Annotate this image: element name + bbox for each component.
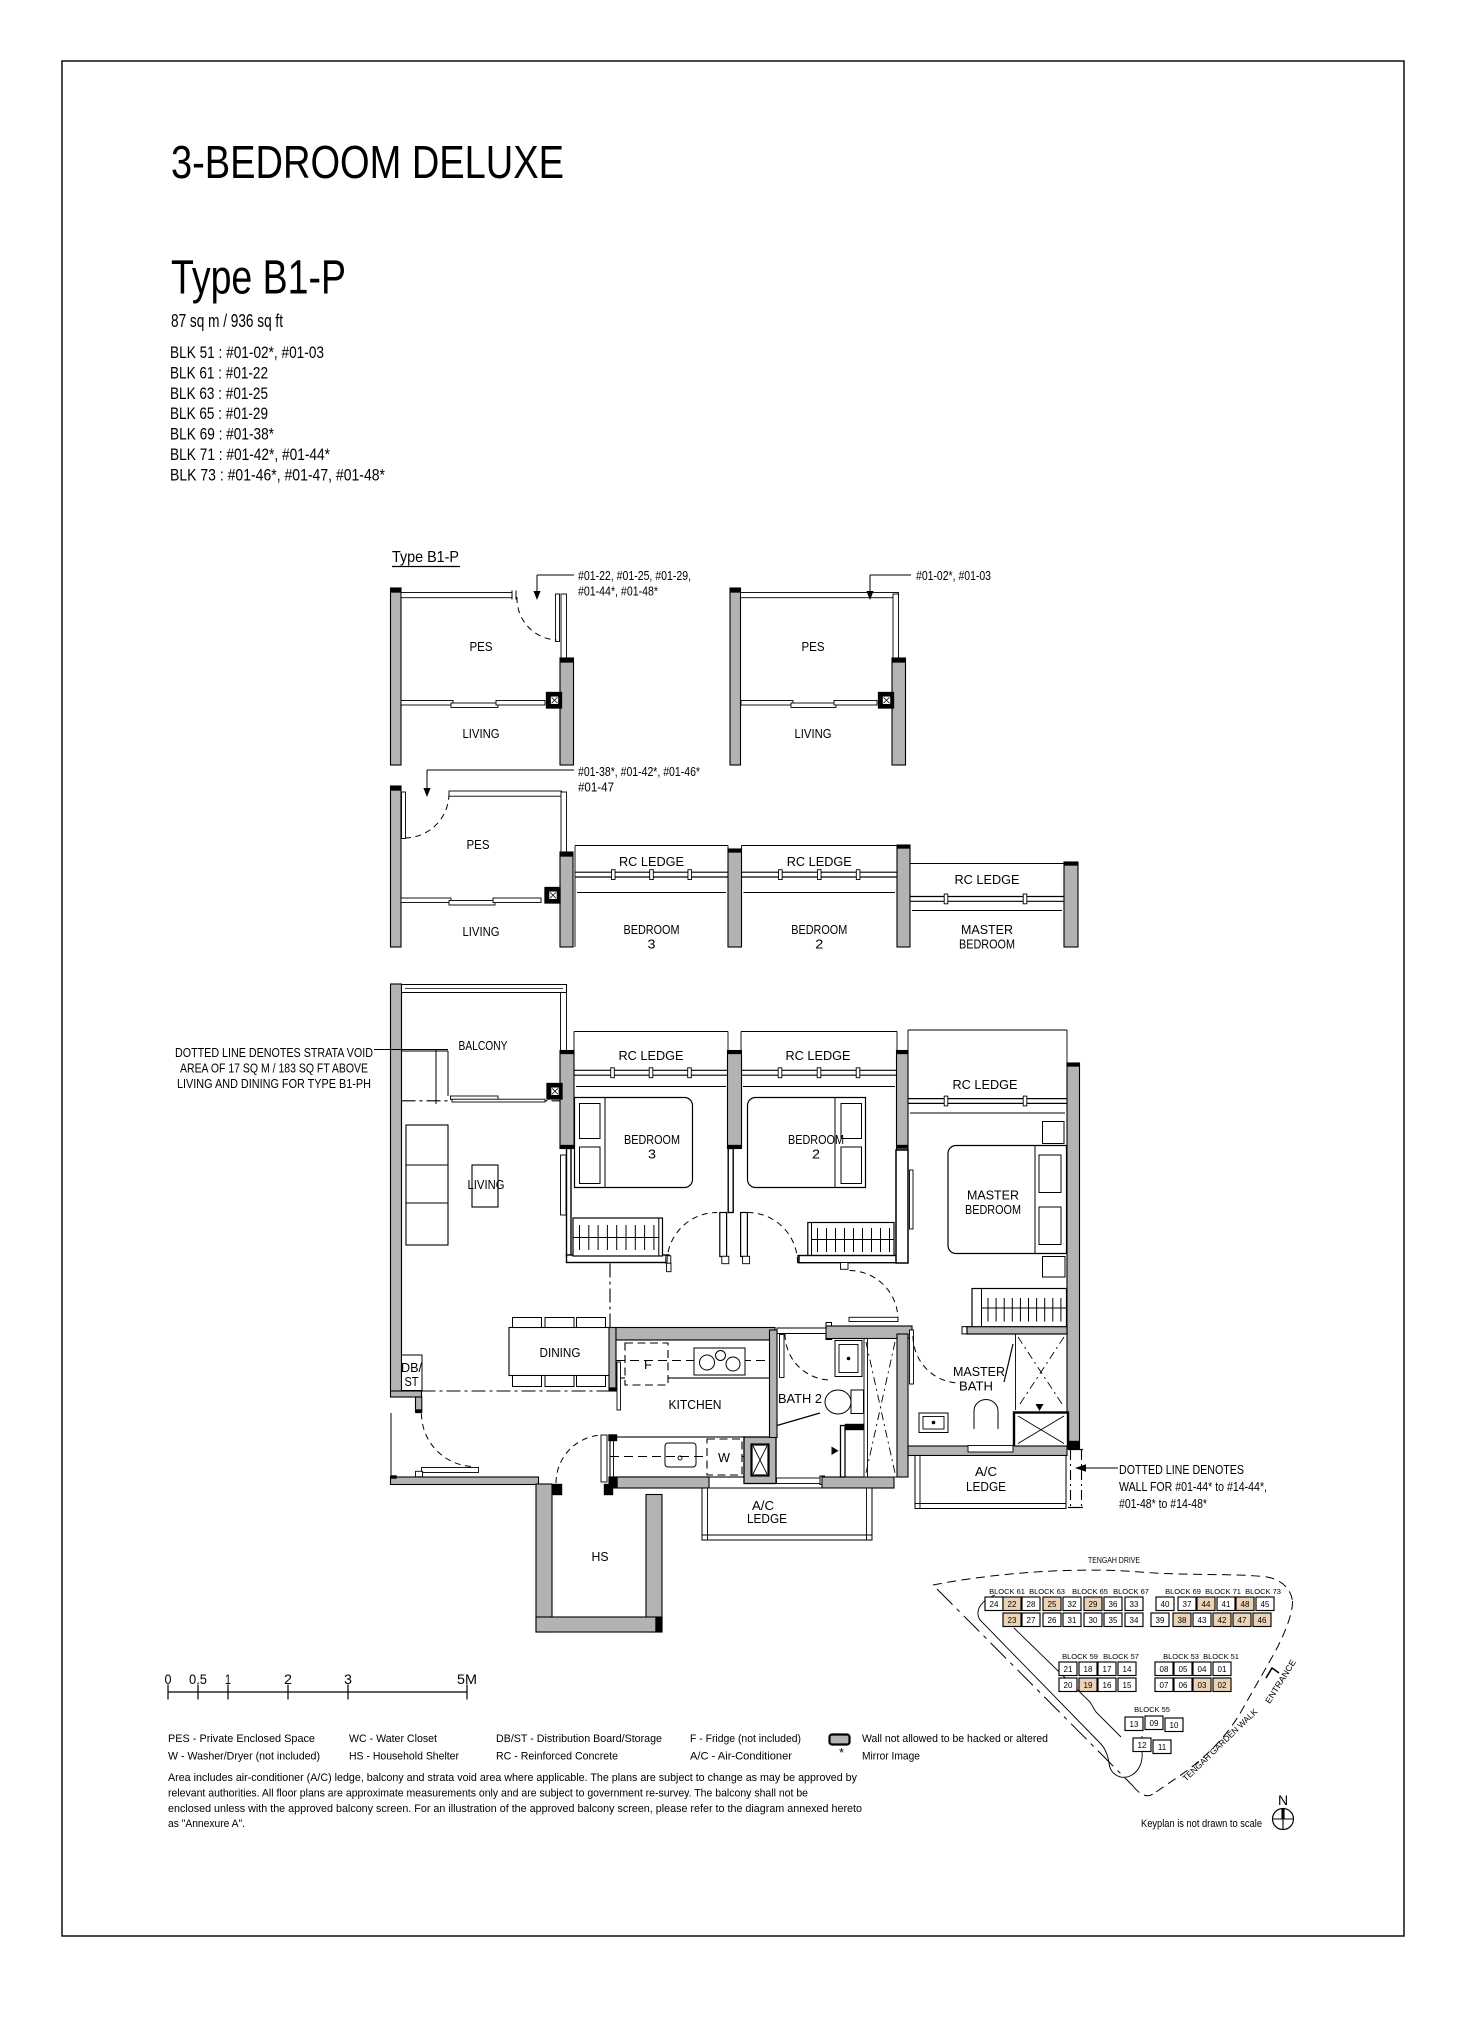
svg-text:BLOCK 73: BLOCK 73 — [1245, 1587, 1281, 1596]
svg-text:BLOCK 65: BLOCK 65 — [1072, 1587, 1108, 1596]
svg-text:MASTER: MASTER — [953, 1364, 1005, 1379]
svg-text:04: 04 — [1198, 1665, 1207, 1674]
svg-text:29: 29 — [1089, 1600, 1098, 1609]
svg-text:A/C: A/C — [975, 1464, 997, 1479]
svg-text:BEDROOM: BEDROOM — [959, 937, 1015, 952]
svg-text:LIVING: LIVING — [795, 726, 832, 741]
svg-text:A/C - Air-Conditioner: A/C - Air-Conditioner — [690, 1751, 792, 1763]
svg-text:#01-38*, #01-42*, #01-46*: #01-38*, #01-42*, #01-46* — [578, 765, 700, 779]
svg-text:10: 10 — [1170, 1721, 1179, 1730]
svg-text:BLK 69 : #01-38*: BLK 69 : #01-38* — [170, 425, 274, 444]
svg-text:BLOCK 63: BLOCK 63 — [1029, 1587, 1065, 1596]
svg-text:BLOCK 59: BLOCK 59 — [1062, 1652, 1098, 1661]
svg-text:PES: PES — [802, 639, 825, 654]
svg-text:3-BEDROOM DELUXE: 3-BEDROOM DELUXE — [171, 136, 564, 188]
svg-text:#01-02*, #01-03: #01-02*, #01-03 — [916, 569, 991, 583]
svg-text:AREA OF 17 SQ M / 183 SQ FT AB: AREA OF 17 SQ M / 183 SQ FT ABOVE — [180, 1062, 368, 1076]
svg-text:23: 23 — [1008, 1616, 1017, 1625]
svg-text:N: N — [1278, 1792, 1288, 1808]
svg-text:37: 37 — [1183, 1600, 1192, 1609]
svg-text:BLK 73 : #01-46*, #01-47, #01-: BLK 73 : #01-46*, #01-47, #01-48* — [170, 465, 385, 484]
svg-text:0: 0 — [165, 1672, 172, 1687]
svg-text:Mirror Image: Mirror Image — [862, 1751, 920, 1763]
svg-text:LEDGE: LEDGE — [747, 1511, 787, 1526]
svg-text:RC - Reinforced Concrete: RC - Reinforced Concrete — [496, 1751, 618, 1763]
svg-text:PES: PES — [467, 837, 490, 852]
svg-text:#01-44*, #01-48*: #01-44*, #01-48* — [578, 585, 658, 599]
svg-text:W - Washer/Dryer (not included: W - Washer/Dryer (not included) — [168, 1751, 320, 1763]
svg-text:LIVING: LIVING — [463, 726, 500, 741]
svg-text:21: 21 — [1064, 1665, 1073, 1674]
svg-text:BLOCK 51: BLOCK 51 — [1203, 1652, 1239, 1661]
svg-text:HS: HS — [592, 1549, 609, 1564]
svg-text:Area includes air-conditioner: Area includes air-conditioner (A/C) ledg… — [168, 1772, 858, 1784]
svg-text:28: 28 — [1027, 1600, 1036, 1609]
svg-text:3: 3 — [344, 1672, 352, 1687]
svg-text:DB/: DB/ — [401, 1360, 422, 1375]
svg-text:14: 14 — [1123, 1665, 1132, 1674]
svg-text:BLOCK 71: BLOCK 71 — [1205, 1587, 1241, 1596]
svg-text:22: 22 — [1008, 1600, 1017, 1609]
svg-text:42: 42 — [1218, 1616, 1227, 1625]
svg-text:46: 46 — [1258, 1616, 1267, 1625]
svg-text:Keyplan is not drawn to scale: Keyplan is not drawn to scale — [1141, 1818, 1262, 1830]
svg-text:MASTER: MASTER — [967, 1188, 1019, 1203]
svg-text:32: 32 — [1068, 1600, 1077, 1609]
svg-text:02: 02 — [1218, 1681, 1227, 1690]
svg-text:25: 25 — [1048, 1600, 1057, 1609]
svg-text:BATH: BATH — [959, 1379, 993, 1394]
svg-text:35: 35 — [1109, 1616, 1118, 1625]
svg-text:11: 11 — [1158, 1743, 1167, 1752]
svg-text:as "Annexure A".: as "Annexure A". — [168, 1818, 245, 1830]
svg-text:03: 03 — [1198, 1681, 1207, 1690]
svg-text:19: 19 — [1084, 1681, 1093, 1690]
svg-text:87 sq m / 936 sq ft: 87 sq m / 936 sq ft — [171, 311, 283, 331]
svg-text:BLK 63 : #01-25: BLK 63 : #01-25 — [170, 384, 268, 403]
svg-text:18: 18 — [1084, 1665, 1093, 1674]
svg-text:34: 34 — [1130, 1616, 1139, 1625]
svg-text:48: 48 — [1241, 1600, 1250, 1609]
svg-text:BEDROOM: BEDROOM — [624, 922, 680, 937]
svg-text:BEDROOM: BEDROOM — [788, 1132, 844, 1147]
svg-text:38: 38 — [1178, 1616, 1187, 1625]
svg-text:Type B1-P: Type B1-P — [171, 252, 346, 305]
svg-text:1: 1 — [225, 1672, 231, 1687]
svg-text:13: 13 — [1130, 1720, 1139, 1729]
svg-text:2: 2 — [812, 1147, 820, 1162]
svg-text:17: 17 — [1103, 1665, 1112, 1674]
svg-text:05: 05 — [1179, 1665, 1188, 1674]
svg-text:W: W — [718, 1450, 731, 1465]
svg-text:RC LEDGE: RC LEDGE — [787, 854, 852, 869]
svg-text:BLOCK 53: BLOCK 53 — [1163, 1652, 1199, 1661]
svg-text:ST: ST — [405, 1374, 419, 1389]
svg-text:LEDGE: LEDGE — [966, 1479, 1006, 1494]
svg-text:#01-22, #01-25, #01-29,: #01-22, #01-25, #01-29, — [578, 569, 691, 583]
svg-text:HS - Household Shelter: HS - Household Shelter — [349, 1751, 459, 1763]
svg-text:PES - Private Enclosed Space: PES - Private Enclosed Space — [168, 1733, 315, 1745]
svg-text:BLK 61 : #01-22: BLK 61 : #01-22 — [170, 363, 268, 382]
svg-text:Type B1-P: Type B1-P — [392, 549, 459, 566]
svg-text:BEDROOM: BEDROOM — [624, 1132, 680, 1147]
svg-text:24: 24 — [990, 1600, 999, 1609]
svg-text:#01-48* to #14-48*: #01-48* to #14-48* — [1119, 1497, 1207, 1511]
svg-text:3: 3 — [648, 1147, 656, 1162]
svg-text:DOTTED LINE DENOTES STRATA VOI: DOTTED LINE DENOTES STRATA VOID — [175, 1046, 373, 1060]
svg-text:BLOCK 67: BLOCK 67 — [1113, 1587, 1149, 1596]
svg-text:15: 15 — [1123, 1681, 1132, 1690]
svg-text:09: 09 — [1150, 1719, 1159, 1728]
svg-text:39: 39 — [1156, 1616, 1165, 1625]
svg-text:27: 27 — [1027, 1616, 1036, 1625]
svg-text:TENGAH DRIVE: TENGAH DRIVE — [1088, 1555, 1140, 1565]
svg-text:31: 31 — [1068, 1616, 1077, 1625]
svg-text:ENTRANCE: ENTRANCE — [1263, 1657, 1298, 1705]
svg-text:KITCHEN: KITCHEN — [669, 1397, 722, 1412]
svg-text:BLK 71 : #01-42*, #01-44*: BLK 71 : #01-42*, #01-44* — [170, 445, 330, 464]
svg-text:41: 41 — [1222, 1600, 1231, 1609]
svg-text:2: 2 — [284, 1672, 292, 1687]
svg-text:DINING: DINING — [540, 1345, 581, 1360]
svg-text:07: 07 — [1160, 1681, 1169, 1690]
svg-text:2: 2 — [815, 937, 823, 952]
svg-text:5M: 5M — [457, 1672, 477, 1687]
svg-text:MASTER: MASTER — [961, 922, 1013, 937]
svg-text:F - Fridge (not included): F - Fridge (not included) — [690, 1733, 801, 1745]
svg-text:Wall not allowed to be hacked: Wall not allowed to be hacked or altered — [862, 1733, 1048, 1745]
svg-text:enclosed unless with the appro: enclosed unless with the approved balcon… — [168, 1803, 862, 1815]
svg-text:30: 30 — [1089, 1616, 1098, 1625]
svg-text:BLOCK 69: BLOCK 69 — [1165, 1587, 1201, 1596]
svg-text:PES: PES — [470, 639, 493, 654]
svg-text:26: 26 — [1048, 1616, 1057, 1625]
svg-text:0.5: 0.5 — [189, 1672, 207, 1687]
svg-text:DB/ST - Distribution Board/Sto: DB/ST - Distribution Board/Storage — [496, 1733, 662, 1745]
svg-text:BEDROOM: BEDROOM — [965, 1202, 1021, 1217]
svg-text:43: 43 — [1198, 1616, 1207, 1625]
svg-text:WC - Water Closet: WC - Water Closet — [349, 1733, 437, 1745]
svg-text:LIVING: LIVING — [463, 924, 500, 939]
svg-text:BATH 2: BATH 2 — [778, 1391, 822, 1406]
svg-text:BLOCK 55: BLOCK 55 — [1134, 1705, 1170, 1714]
svg-text:RC LEDGE: RC LEDGE — [953, 1077, 1018, 1092]
svg-text:RC LEDGE: RC LEDGE — [955, 872, 1020, 887]
svg-text:WALL FOR #01-44* to #14-44*,: WALL FOR #01-44* to #14-44*, — [1119, 1480, 1267, 1494]
svg-text:44: 44 — [1202, 1600, 1211, 1609]
svg-text:36: 36 — [1109, 1600, 1118, 1609]
svg-text:LIVING AND DINING FOR TYPE B1: LIVING AND DINING FOR TYPE B1-PH — [177, 1077, 371, 1091]
svg-text:F: F — [644, 1357, 652, 1372]
svg-text:BLOCK 57: BLOCK 57 — [1103, 1652, 1139, 1661]
svg-text:33: 33 — [1130, 1600, 1139, 1609]
svg-text:3: 3 — [648, 937, 656, 952]
svg-text:06: 06 — [1179, 1681, 1188, 1690]
svg-text:DOTTED LINE DENOTES: DOTTED LINE DENOTES — [1119, 1463, 1244, 1477]
svg-text:BLK 65 : #01-29: BLK 65 : #01-29 — [170, 404, 268, 423]
svg-text:BLOCK 61: BLOCK 61 — [989, 1587, 1025, 1596]
svg-text:08: 08 — [1160, 1665, 1169, 1674]
svg-text:01: 01 — [1218, 1665, 1227, 1674]
svg-text:45: 45 — [1261, 1600, 1270, 1609]
svg-text:12: 12 — [1138, 1741, 1147, 1750]
svg-text:16: 16 — [1103, 1681, 1112, 1690]
svg-text:RC LEDGE: RC LEDGE — [786, 1048, 851, 1063]
svg-text:RC LEDGE: RC LEDGE — [619, 1048, 684, 1063]
svg-text:*: * — [839, 1745, 844, 1760]
svg-text:BLK 51 : #01-02*, #01-03: BLK 51 : #01-02*, #01-03 — [170, 343, 324, 362]
svg-text:BEDROOM: BEDROOM — [791, 922, 847, 937]
svg-text:LIVING: LIVING — [468, 1177, 505, 1192]
svg-text:TENGAH GARDEN WALK: TENGAH GARDEN WALK — [1180, 1706, 1259, 1783]
svg-text:#01-47: #01-47 — [578, 781, 614, 795]
svg-text:BALCONY: BALCONY — [459, 1038, 508, 1053]
svg-text:20: 20 — [1064, 1681, 1073, 1690]
svg-text:47: 47 — [1238, 1616, 1247, 1625]
svg-text:40: 40 — [1161, 1600, 1170, 1609]
svg-text:relevant authorities. All floo: relevant authorities. All floor plans ar… — [168, 1787, 808, 1799]
svg-text:RC LEDGE: RC LEDGE — [619, 854, 684, 869]
